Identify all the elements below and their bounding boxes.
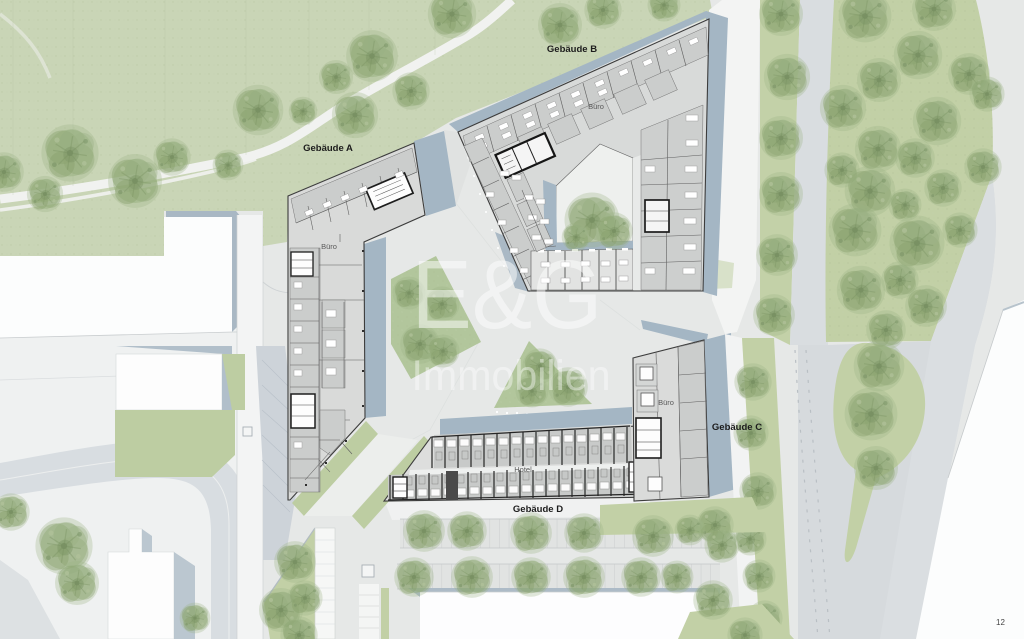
svg-text:12: 12 [996,618,1005,627]
svg-text:Büro: Büro [658,398,674,407]
svg-text:Büro: Büro [588,102,604,111]
svg-text:Gebäude A: Gebäude A [303,143,353,154]
svg-text:E&G: E&G [412,240,603,349]
svg-text:Gebäude C: Gebäude C [712,422,762,433]
svg-text:Hotel: Hotel [514,465,532,474]
svg-text:Immobilien: Immobilien [412,352,611,400]
svg-text:Gebäude D: Gebäude D [513,504,563,515]
svg-text:Gebäude B: Gebäude B [547,44,597,55]
svg-text:Büro: Büro [321,242,337,251]
